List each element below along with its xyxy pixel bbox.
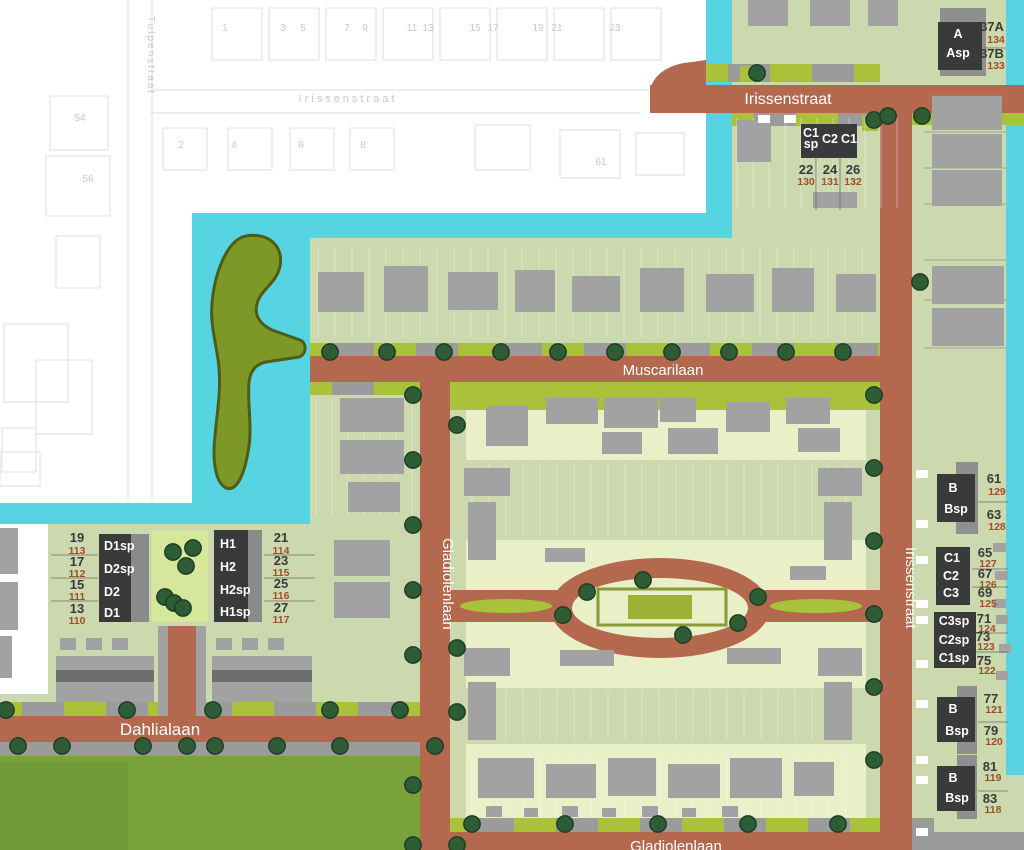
lot-id: 118 — [985, 804, 1002, 816]
building — [772, 268, 814, 312]
existing-house-number: 3 — [280, 23, 286, 34]
building — [794, 762, 834, 796]
street-label: Dahlialaan — [120, 720, 200, 739]
existing-house-number: 11 — [407, 23, 418, 34]
building — [216, 638, 232, 650]
tree-icon — [178, 558, 194, 574]
tree-icon — [269, 738, 285, 754]
site-plan-canvas: AAspC1spC2C1BBspC1C2C3C3spC2spC1spBBspBB… — [0, 0, 1024, 850]
tree-icon — [179, 738, 195, 754]
existing-house-number: 61 — [595, 157, 607, 168]
tree-icon — [778, 344, 794, 360]
tree-icon — [405, 517, 421, 533]
building — [824, 682, 852, 740]
existing-house-number: 8 — [360, 140, 366, 151]
building — [995, 571, 1008, 580]
tree-icon — [880, 108, 896, 124]
verge-square — [795, 66, 811, 82]
building — [545, 548, 585, 562]
building — [730, 758, 782, 798]
lot-id: 132 — [844, 176, 862, 188]
house-type-label: Bsp — [944, 502, 968, 516]
house-type-label: A — [953, 27, 962, 41]
building — [560, 650, 614, 666]
tree-icon — [119, 702, 135, 718]
building — [546, 398, 598, 424]
tree-icon — [175, 600, 191, 616]
driveway-tick — [784, 115, 796, 123]
tree-icon — [405, 582, 421, 598]
building — [524, 808, 538, 817]
building — [486, 406, 528, 446]
road-footpath — [168, 626, 196, 716]
water-channel-west — [0, 503, 310, 524]
driveway-tick — [916, 700, 928, 708]
tree-icon — [866, 679, 882, 695]
street-label: Irissenstraat — [902, 547, 919, 630]
tree-icon — [405, 452, 421, 468]
lot-number: 19 — [70, 530, 84, 545]
parking-strip — [22, 702, 64, 716]
tree-icon — [675, 627, 691, 643]
building — [868, 0, 898, 26]
building — [790, 566, 826, 580]
tree-icon — [207, 738, 223, 754]
building — [818, 648, 862, 676]
tree-icon — [650, 816, 666, 832]
lot-number: 13 — [70, 601, 84, 616]
house-type-label: B — [948, 771, 957, 785]
house-type-label: H2sp — [220, 583, 251, 597]
building — [836, 274, 876, 312]
site-plan-map: AAspC1spC2C1BBspC1C2C3C3spC2spC1spBBspBB… — [0, 0, 1024, 850]
lot-id: 131 — [821, 176, 839, 188]
existing-area-west — [0, 213, 192, 503]
building — [993, 543, 1006, 552]
lot-id: 129 — [988, 486, 1006, 498]
lot-number: 22 — [799, 162, 813, 177]
building — [448, 272, 498, 310]
lot-number: 23 — [274, 553, 288, 568]
existing-house-number: 17 — [487, 23, 499, 34]
tree-icon — [866, 752, 882, 768]
tree-icon — [449, 704, 465, 720]
tree-icon — [835, 344, 851, 360]
building — [813, 192, 857, 208]
driveway-tick — [758, 115, 770, 123]
existing-house-number: 7 — [344, 23, 350, 34]
building — [726, 402, 770, 432]
tree-icon — [664, 344, 680, 360]
building-roof-stripe — [56, 670, 154, 682]
building — [798, 428, 840, 452]
tree-icon — [579, 584, 595, 600]
building — [727, 648, 781, 664]
tree-icon — [866, 533, 882, 549]
building — [604, 398, 658, 428]
tree-icon — [740, 816, 756, 832]
house-type-label: D1 — [104, 606, 120, 620]
existing-house-number: 6 — [298, 140, 304, 151]
driveway-tick — [916, 660, 928, 668]
building — [0, 582, 18, 630]
tree-icon — [914, 108, 930, 124]
lot-id: 130 — [797, 176, 815, 188]
street-label: Tulpenstraat — [145, 16, 156, 95]
house-type-label: Asp — [946, 46, 970, 60]
building-roof-stripe — [212, 670, 312, 682]
existing-area-north — [0, 0, 708, 213]
house-type-label: B — [948, 481, 957, 495]
lot-number: 17 — [70, 554, 84, 569]
building — [468, 502, 496, 560]
central-green — [628, 595, 692, 619]
house-type-label: C3 — [943, 586, 959, 600]
lot-number: 26 — [846, 162, 860, 177]
building — [112, 638, 128, 650]
road-muscarilaan — [310, 356, 880, 382]
grass-field-dark — [0, 762, 128, 850]
building — [478, 758, 534, 798]
tree-icon — [607, 344, 623, 360]
house-type-label: C2 — [943, 569, 959, 583]
lot-id: 110 — [69, 615, 86, 627]
tree-icon — [866, 387, 882, 403]
building — [0, 528, 18, 574]
tree-icon — [427, 738, 443, 754]
building — [996, 615, 1008, 624]
parking-strip — [332, 382, 374, 395]
building — [464, 648, 510, 676]
lot-id: 117 — [273, 614, 290, 626]
tree-icon — [555, 607, 571, 623]
tree-icon — [405, 387, 421, 403]
building — [318, 272, 364, 312]
lot-id: 125 — [979, 598, 997, 610]
tree-icon — [449, 640, 465, 656]
building — [60, 638, 76, 650]
lot-number: 24 — [823, 162, 838, 177]
tree-icon — [866, 606, 882, 622]
existing-house-number: 19 — [532, 23, 544, 34]
lot-number: 15 — [70, 577, 84, 592]
tree-icon — [205, 702, 221, 718]
building — [384, 266, 428, 312]
building — [748, 0, 788, 26]
house-type-label: C1sp — [939, 651, 970, 665]
building — [268, 638, 284, 650]
driveway-tick — [916, 756, 928, 764]
parking-strip — [812, 64, 854, 82]
tree-icon — [185, 540, 201, 556]
house-type-label: D2 — [104, 585, 120, 599]
building — [572, 276, 620, 312]
house-type-label: C1sp — [803, 126, 819, 151]
lot-number: 25 — [274, 576, 288, 591]
building — [660, 398, 696, 422]
building — [334, 540, 390, 576]
existing-house-number: 9 — [362, 23, 368, 34]
existing-house-number: 2 — [178, 140, 184, 151]
tree-icon — [912, 274, 928, 290]
lot-number: 37B — [980, 46, 1004, 61]
tree-icon — [721, 344, 737, 360]
tree-icon — [436, 344, 452, 360]
tree-icon — [493, 344, 509, 360]
parking-strip — [912, 832, 1024, 850]
lot-number: 37A — [980, 19, 1004, 34]
lot-number: 61 — [987, 471, 1001, 486]
building — [722, 806, 738, 817]
building — [932, 134, 1002, 168]
tree-icon — [379, 344, 395, 360]
tree-icon — [322, 702, 338, 718]
existing-house-number: 54 — [74, 113, 86, 124]
building — [334, 582, 390, 618]
driveway-tick — [916, 776, 928, 784]
tree-icon — [830, 816, 846, 832]
building — [932, 266, 1004, 304]
house-type-label: C2 — [822, 132, 838, 146]
building — [468, 682, 496, 740]
water-channel-northeast — [706, 0, 732, 238]
building — [640, 268, 684, 312]
lot-number: 63 — [987, 507, 1001, 522]
lot-number: 27 — [274, 600, 288, 615]
tree-icon — [165, 544, 181, 560]
existing-house-number: 56 — [82, 174, 94, 185]
street-label: Irissenstraat — [744, 91, 832, 108]
driveway-tick — [916, 828, 928, 836]
building — [340, 440, 404, 474]
building — [818, 468, 862, 496]
building — [608, 758, 656, 796]
building — [464, 468, 510, 496]
tree-icon — [449, 837, 465, 850]
street-label: Gladiolenlaan — [439, 538, 456, 630]
tree-icon — [635, 572, 651, 588]
tree-icon — [405, 837, 421, 850]
tree-icon — [405, 647, 421, 663]
tree-icon — [750, 589, 766, 605]
tree-icon — [135, 738, 151, 754]
building — [932, 96, 1002, 130]
house-type-label: H1sp — [220, 605, 251, 619]
building — [642, 806, 658, 817]
building — [602, 432, 642, 454]
tree-icon — [322, 344, 338, 360]
tree-icon — [54, 738, 70, 754]
building — [242, 638, 258, 650]
lot-id: 128 — [988, 521, 1006, 533]
building — [486, 806, 502, 817]
street-label: Muscarilaan — [623, 362, 704, 379]
median-west — [460, 599, 552, 613]
building — [340, 398, 404, 432]
existing-house-number: 1 — [222, 23, 228, 34]
building — [158, 626, 168, 716]
building — [824, 502, 852, 560]
tree-icon — [730, 615, 746, 631]
building — [668, 428, 718, 454]
building — [0, 636, 12, 678]
tree-icon — [866, 460, 882, 476]
lot-id: 133 — [987, 60, 1005, 72]
house-type-label: Bsp — [945, 791, 969, 805]
lot-id: 121 — [985, 704, 1003, 716]
house-type-label: Bsp — [945, 724, 969, 738]
building — [348, 482, 400, 512]
lot-id: 134 — [987, 34, 1005, 46]
building — [682, 808, 696, 817]
building — [932, 308, 1004, 346]
building — [546, 764, 596, 798]
water-channel-north — [192, 213, 732, 238]
building — [515, 270, 555, 312]
existing-house-number: 13 — [422, 23, 434, 34]
driveway-tick — [916, 520, 928, 528]
house-type-label: C3sp — [939, 614, 970, 628]
building — [810, 0, 850, 26]
house-type-label: B — [948, 702, 957, 716]
tree-icon — [464, 816, 480, 832]
tree-icon — [392, 702, 408, 718]
building — [996, 671, 1008, 680]
tree-icon — [405, 777, 421, 793]
building — [786, 398, 830, 424]
tree-icon — [449, 417, 465, 433]
tree-icon — [10, 738, 26, 754]
existing-house-number: 15 — [469, 23, 481, 34]
lot-id: 119 — [985, 772, 1002, 784]
verge-strip — [406, 382, 874, 396]
lot-number: 21 — [274, 530, 288, 545]
house-type-label: C1 — [841, 132, 857, 146]
house-type-label: H2 — [220, 560, 236, 574]
house-type-label: C1 — [944, 551, 960, 565]
driveway-tick — [916, 470, 928, 478]
lot-id: 122 — [978, 665, 996, 677]
lot-id: 120 — [985, 736, 1003, 748]
street-label: Irissenstraat — [299, 93, 398, 105]
house-type-label: D1sp — [104, 539, 135, 553]
tree-icon — [332, 738, 348, 754]
parking-strip — [274, 702, 316, 716]
tree-icon — [749, 65, 765, 81]
building — [602, 808, 616, 817]
house-type-label: H1 — [220, 537, 236, 551]
house-type-label: D2sp — [104, 562, 135, 576]
existing-house-number: 5 — [300, 23, 306, 34]
building — [706, 274, 754, 312]
house-type-label: C2sp — [939, 633, 970, 647]
tree-icon — [0, 702, 14, 718]
street-label: Gladiolenlaan — [630, 838, 722, 850]
road-irissenstraat-right — [880, 85, 912, 850]
lot-id: 123 — [977, 641, 995, 653]
existing-house-number: 23 — [609, 23, 621, 34]
tree-icon — [557, 816, 573, 832]
building — [196, 626, 206, 716]
median-east — [770, 599, 862, 613]
building — [737, 120, 771, 162]
existing-house-number: 4 — [231, 140, 237, 151]
building — [932, 170, 1002, 206]
existing-house-number: 21 — [551, 23, 563, 34]
building — [668, 764, 720, 798]
tree-icon — [550, 344, 566, 360]
building — [86, 638, 102, 650]
